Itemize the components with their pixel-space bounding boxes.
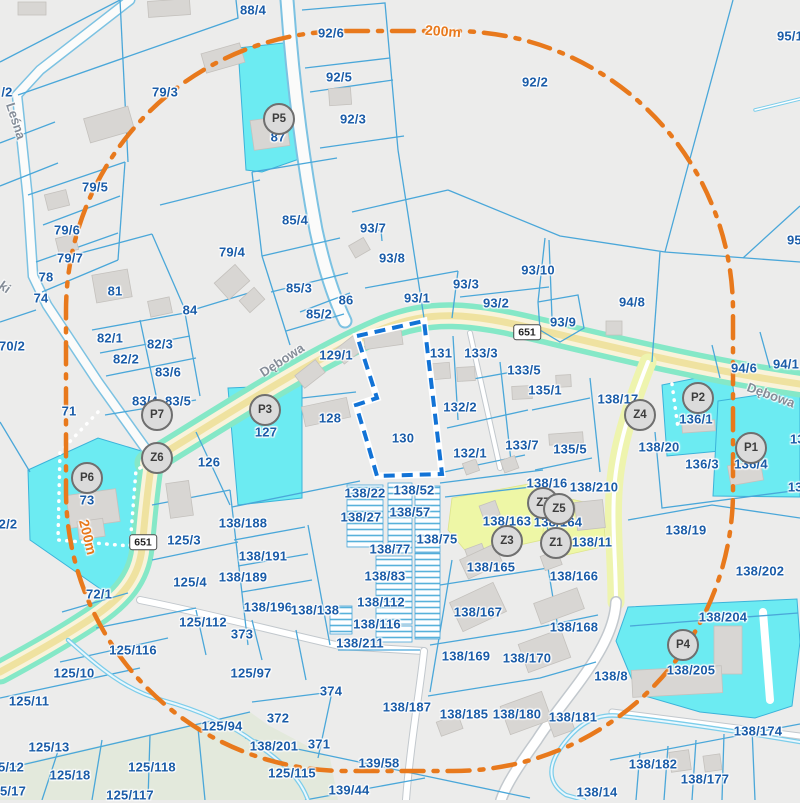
- poi-marker[interactable]: Z3: [491, 525, 523, 557]
- poi-marker[interactable]: Z1: [540, 527, 572, 559]
- poi-marker[interactable]: Z4: [624, 399, 656, 431]
- poi-marker[interactable]: P5: [263, 103, 295, 135]
- poi-marker[interactable]: P7: [141, 399, 173, 431]
- map-markers-layer: P5P7Z6P6P3Z4P2P1Z7Z5Z3Z1P4: [0, 0, 800, 800]
- poi-marker[interactable]: P1: [735, 432, 767, 464]
- poi-marker[interactable]: P6: [71, 462, 103, 494]
- poi-marker[interactable]: Z6: [141, 442, 173, 474]
- poi-marker[interactable]: P2: [682, 382, 714, 414]
- poi-marker[interactable]: Z5: [543, 493, 575, 525]
- cadastral-map: 88/492/692/592/38779/3/292/295/195/779/5…: [0, 0, 800, 800]
- poi-marker[interactable]: P3: [249, 394, 281, 426]
- poi-marker[interactable]: P4: [667, 629, 699, 661]
